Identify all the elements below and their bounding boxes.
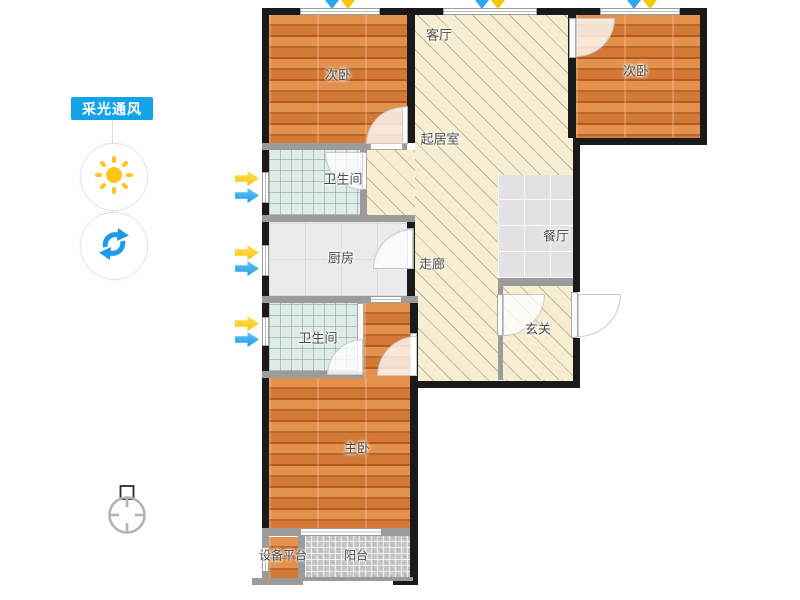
wall-dining-entry [498,278,573,286]
daylight-arrow-icon [235,171,259,186]
daylight-arrow-icon [235,245,259,260]
compass-icon [97,483,159,545]
label-living: 客厅 [426,25,452,44]
window-master-balcony [300,528,382,536]
label-equipment: 设备平台 [259,547,307,564]
wall-bedroom-tl-right [407,8,415,143]
lighting-ventilation-label: 采光通风 [82,99,142,119]
label-bath-lower: 卫生间 [298,328,337,347]
label-corridor: 走廊 [419,254,445,273]
door-threshold-bedroom-tl [370,143,403,150]
door-leaf-entrance [571,292,578,338]
floorplan-viewer: 采光通风 [0,0,800,600]
label-bedroom-tl: 次卧 [325,65,351,84]
label-balcony: 阳台 [344,547,368,564]
refresh-icon [97,227,131,266]
window-kitchen [262,245,269,276]
wall-bath-kitchen [262,215,415,222]
daylight-arrow-icon [235,316,259,331]
label-master: 主卧 [344,438,370,457]
balcony-railing [303,577,413,581]
label-dining: 餐厅 [543,226,569,245]
wall-right-top [700,8,707,145]
rotate-button[interactable] [80,212,148,280]
living-area-alcove [367,150,415,215]
wall-equipment-bottom [252,578,303,585]
label-kitchen: 厨房 [328,248,354,267]
ventilation-arrow-icon [235,261,259,276]
door-leaf-bedroom-tr [569,18,576,58]
lighting-ventilation-button[interactable]: 采光通风 [71,97,153,120]
window-bedroom-tl [300,8,380,15]
window-bath-upper [262,172,269,203]
wall-right-low [573,338,580,388]
window-bedroom-tr [600,8,680,15]
ventilation-arrow-icon [235,188,259,203]
label-sitting: 起居室 [420,129,459,148]
label-bath-upper: 卫生间 [323,169,362,188]
ventilation-arrow-icon [235,332,259,347]
room-bedroom-master [269,378,410,528]
label-bedroom-tr: 次卧 [623,61,649,80]
wall-right-mid [573,145,580,292]
label-entry: 玄关 [525,319,551,338]
sunlight-button[interactable] [80,143,148,211]
window-bath-lower [262,317,269,346]
door-arc-entrance [578,294,621,337]
window-kitchen-pass [370,296,402,303]
wall-living-bottom [410,381,573,388]
sun-icon [93,154,135,201]
wall-bedroom-tr-bottom [573,138,707,145]
window-living [443,8,537,15]
